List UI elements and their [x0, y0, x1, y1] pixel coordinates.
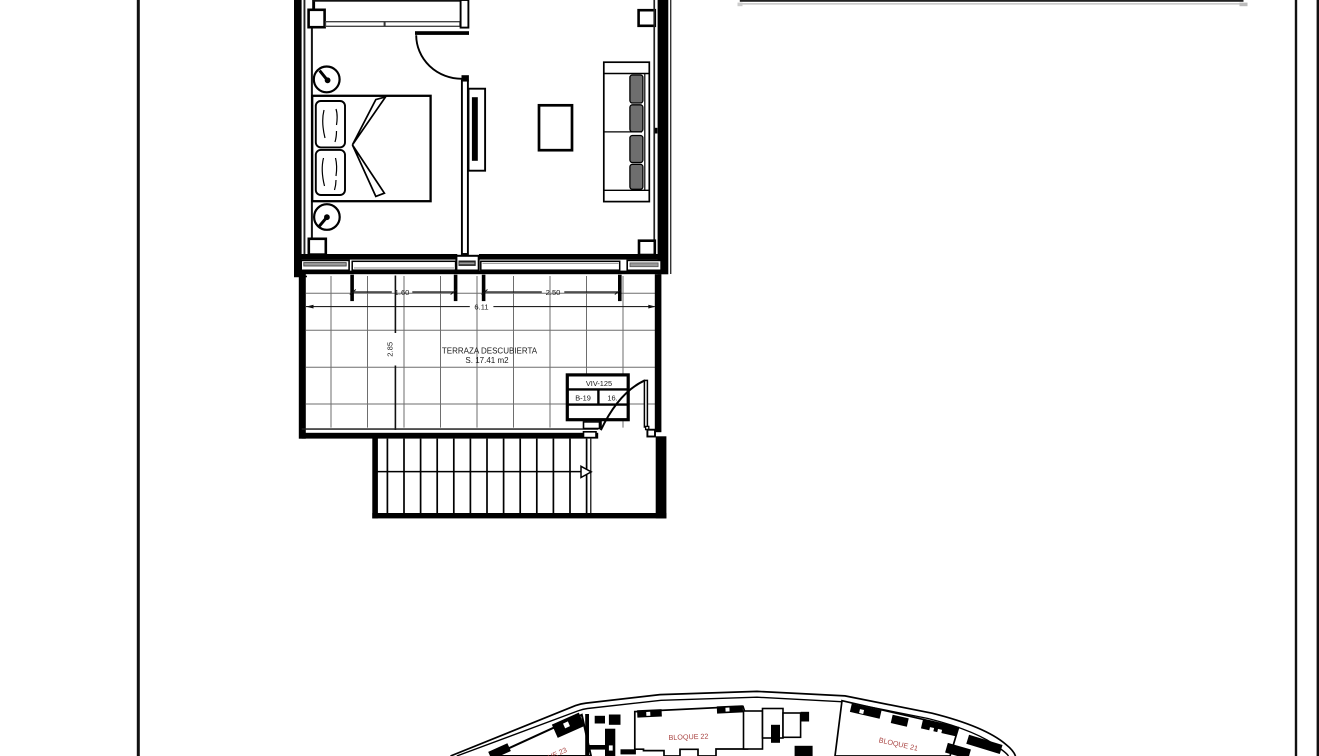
svg-text:TERRAZA DESCUBIERTA: TERRAZA DESCUBIERTA	[442, 346, 538, 355]
svg-text:2.85: 2.85	[386, 342, 395, 357]
svg-text:B-19: B-19	[575, 394, 591, 403]
svg-text:BLOQUE 22: BLOQUE 22	[668, 732, 708, 742]
svg-text:VIV-125: VIV-125	[586, 379, 612, 388]
svg-text:16.: 16.	[607, 394, 617, 403]
svg-text:6.11: 6.11	[474, 303, 488, 312]
svg-text:S. 17.41 m2: S. 17.41 m2	[465, 356, 509, 365]
svg-text:1.60: 1.60	[395, 288, 410, 297]
svg-text:2.50: 2.50	[546, 288, 561, 297]
